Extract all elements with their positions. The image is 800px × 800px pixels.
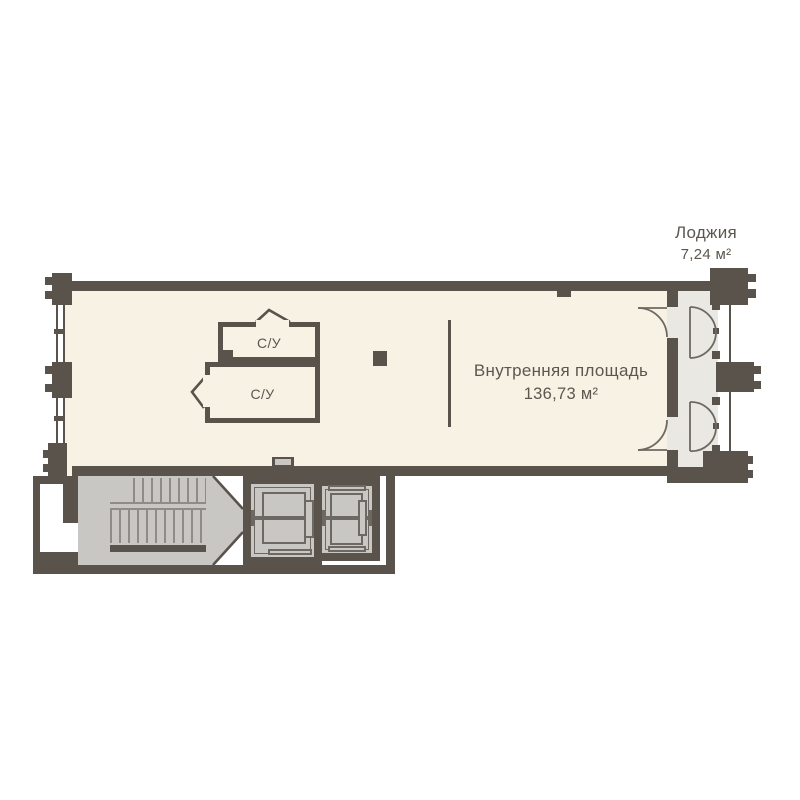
elevator-1-door-sill bbox=[268, 549, 312, 555]
elevator-2-bar-cap-right bbox=[369, 510, 372, 526]
elevator-1-guide-rail bbox=[304, 500, 314, 538]
main-room-name: Внутренняя площадь bbox=[450, 360, 672, 382]
stair-entry-opening bbox=[63, 523, 78, 552]
window-left-lower-tick bbox=[54, 416, 64, 421]
loggia-name: Лоджия bbox=[640, 222, 772, 244]
pillar-left-top bbox=[52, 273, 72, 305]
elevator-lobby-floor bbox=[213, 476, 243, 565]
wall-top bbox=[64, 281, 710, 291]
pillar-left-bottom-notch-2 bbox=[43, 464, 49, 472]
bathroom-top-door-opening bbox=[256, 320, 289, 329]
pillar-right-top bbox=[710, 268, 748, 305]
pillar-right-top-notch-2 bbox=[748, 289, 756, 298]
elevator-2-bar-cap-left bbox=[322, 510, 325, 526]
pillar-left-middle-notch-1 bbox=[45, 366, 52, 374]
pillar-right-middle-notch-1 bbox=[754, 366, 761, 374]
elevator-1-bar-cap-left bbox=[251, 510, 254, 526]
wall-room-bottom bbox=[72, 466, 676, 476]
elevator-1-vent-inner bbox=[275, 459, 291, 465]
pillar-right-bottom bbox=[703, 451, 748, 483]
stair-landing-line bbox=[110, 502, 206, 510]
window-left-upper bbox=[57, 305, 64, 362]
pillar-right-middle bbox=[716, 362, 754, 392]
main-room-area: 136,73 м² bbox=[450, 384, 672, 405]
wall-outer-bottom bbox=[33, 565, 394, 574]
pillar-right-bottom-notch-2 bbox=[746, 470, 753, 478]
pillar-right-middle-notch-2 bbox=[754, 381, 761, 389]
stair-bottom-landing bbox=[110, 545, 206, 552]
column-freestanding bbox=[373, 351, 387, 366]
pillar-left-middle bbox=[52, 362, 72, 398]
stair-flight-upper bbox=[133, 478, 206, 502]
wall-shaft-bottom bbox=[33, 552, 78, 574]
elevator-2-door-sill-bottom bbox=[328, 546, 366, 552]
window-left-lower bbox=[57, 398, 64, 443]
wall-elevator-right bbox=[386, 466, 395, 574]
loggia-label: Лоджия 7,24 м² bbox=[640, 222, 772, 265]
window-left-upper-tick bbox=[54, 329, 64, 334]
wall-room-loggia-upper bbox=[667, 281, 678, 307]
column-bathroom-corner bbox=[218, 350, 233, 364]
wall-room-loggia-lower bbox=[667, 450, 678, 467]
wall-shaft-stair bbox=[63, 476, 78, 523]
wall-top-nub bbox=[557, 290, 571, 297]
pillar-left-bottom bbox=[48, 443, 67, 477]
pillar-left-bottom-notch-1 bbox=[43, 450, 49, 458]
pillar-right-top-notch-1 bbox=[748, 274, 756, 282]
pillar-left-top-notch-2 bbox=[45, 291, 52, 299]
pillar-right-bottom-notch-1 bbox=[746, 456, 753, 464]
main-room-label: Внутренняя площадь 136,73 м² bbox=[450, 360, 672, 406]
bathroom-bottom-label: С/У bbox=[205, 386, 320, 402]
pillar-left-top-notch-1 bbox=[45, 277, 52, 285]
elevator-2-guide-rail bbox=[358, 500, 367, 536]
loggia-area: 7,24 м² bbox=[640, 245, 772, 265]
elevator-2-door-sill-top bbox=[328, 485, 366, 491]
bathroom-top-label: С/У bbox=[218, 335, 320, 351]
stair-flight-lower bbox=[110, 510, 206, 543]
pillar-left-middle-notch-2 bbox=[45, 384, 52, 392]
floor-plan: Лоджия 7,24 м² Внутренняя площадь 136,73… bbox=[0, 0, 800, 800]
